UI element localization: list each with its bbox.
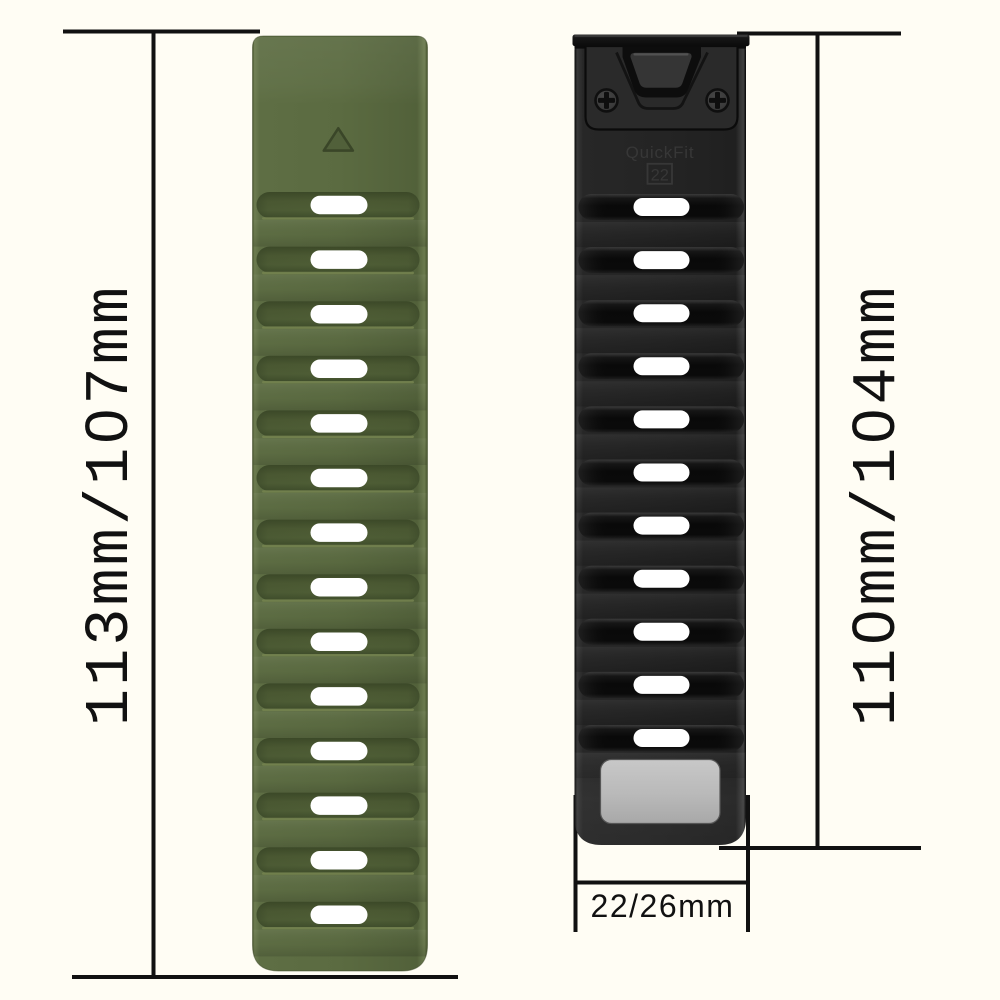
svg-text:22/26mm: 22/26mm	[591, 888, 735, 924]
svg-text:113mm/107mm: 113mm/107mm	[75, 284, 146, 726]
svg-text:22: 22	[651, 166, 669, 184]
svg-text:110mm/104mm: 110mm/104mm	[842, 284, 913, 726]
svg-text:QuickFit: QuickFit	[626, 143, 695, 162]
